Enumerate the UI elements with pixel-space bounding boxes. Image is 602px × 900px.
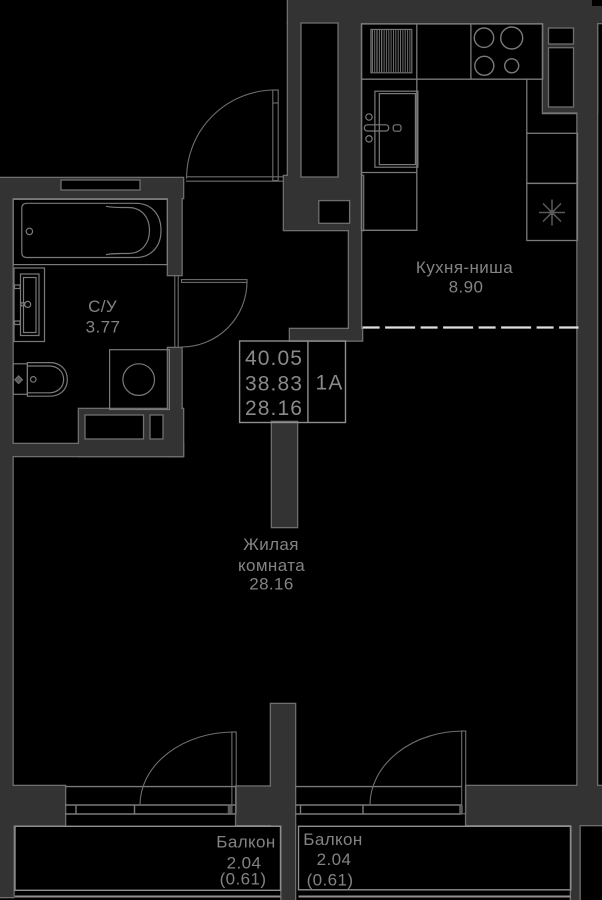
svg-text:1А: 1А xyxy=(316,372,344,395)
svg-text:Балкон: Балкон xyxy=(216,833,275,852)
svg-text:С/У: С/У xyxy=(88,297,117,316)
svg-text:28.16: 28.16 xyxy=(245,397,303,420)
svg-text:3.77: 3.77 xyxy=(86,317,121,336)
svg-text:28.16: 28.16 xyxy=(249,575,294,594)
svg-text:комната: комната xyxy=(238,556,305,575)
svg-text:40.05: 40.05 xyxy=(245,347,303,370)
svg-text:Жилая: Жилая xyxy=(243,535,299,554)
svg-text:(0.61): (0.61) xyxy=(307,871,354,890)
svg-text:Балкон: Балкон xyxy=(303,830,362,849)
svg-text:(0.61): (0.61) xyxy=(220,870,267,889)
svg-text:2.04: 2.04 xyxy=(317,850,352,869)
svg-text:8.90: 8.90 xyxy=(449,277,484,296)
svg-text:38.83: 38.83 xyxy=(245,373,303,396)
svg-text:Кухня-ниша: Кухня-ниша xyxy=(416,258,513,277)
